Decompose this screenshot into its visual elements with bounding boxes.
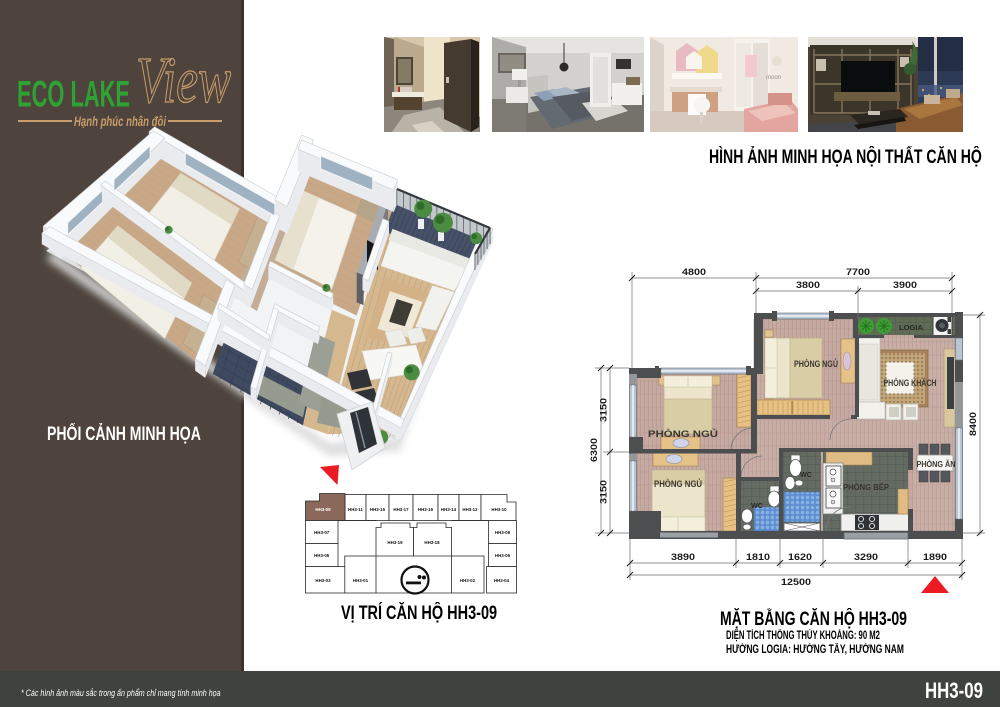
svg-text:PHÒNG KHÁCH: PHÒNG KHÁCH xyxy=(884,377,937,388)
svg-text:7700: 7700 xyxy=(846,267,870,278)
svg-text:PHÒNG NGỦ: PHÒNG NGỦ xyxy=(648,428,718,439)
svg-text:6300: 6300 xyxy=(589,438,600,462)
svg-text:PHÒNG NGỦ: PHÒNG NGỦ xyxy=(654,478,702,489)
svg-text:3150: 3150 xyxy=(599,398,610,422)
svg-text:PHÒNG NGỦ: PHÒNG NGỦ xyxy=(794,358,838,369)
svg-text:3150: 3150 xyxy=(599,480,610,504)
svg-text:1620: 1620 xyxy=(788,552,812,563)
svg-text:1810: 1810 xyxy=(746,552,770,563)
svg-text:WC: WC xyxy=(800,470,813,479)
svg-text:3900: 3900 xyxy=(893,280,917,291)
svg-text:LOGIA: LOGIA xyxy=(899,323,924,332)
svg-text:3290: 3290 xyxy=(854,552,878,563)
svg-text:3800: 3800 xyxy=(796,280,820,291)
svg-text:8400: 8400 xyxy=(968,412,979,436)
svg-text:PHÒNG ĂN: PHÒNG ĂN xyxy=(917,460,956,469)
svg-text:3890: 3890 xyxy=(671,552,695,563)
svg-text:12500: 12500 xyxy=(781,577,811,588)
svg-text:4800: 4800 xyxy=(682,267,706,278)
svg-text:WC: WC xyxy=(751,501,764,510)
svg-text:PHÒNG BẾP: PHÒNG BẾP xyxy=(843,481,889,492)
svg-text:1890: 1890 xyxy=(923,552,947,563)
